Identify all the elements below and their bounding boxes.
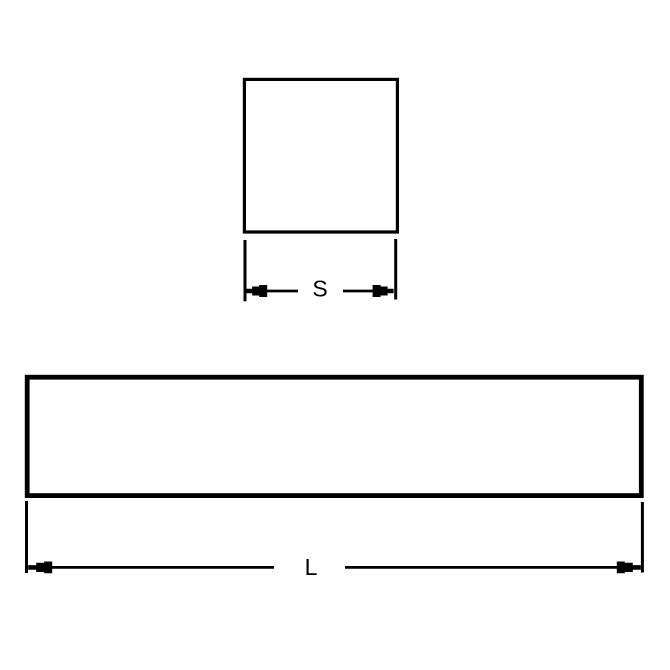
svg-text:S: S [312,276,327,302]
svg-text:L: L [305,554,318,580]
